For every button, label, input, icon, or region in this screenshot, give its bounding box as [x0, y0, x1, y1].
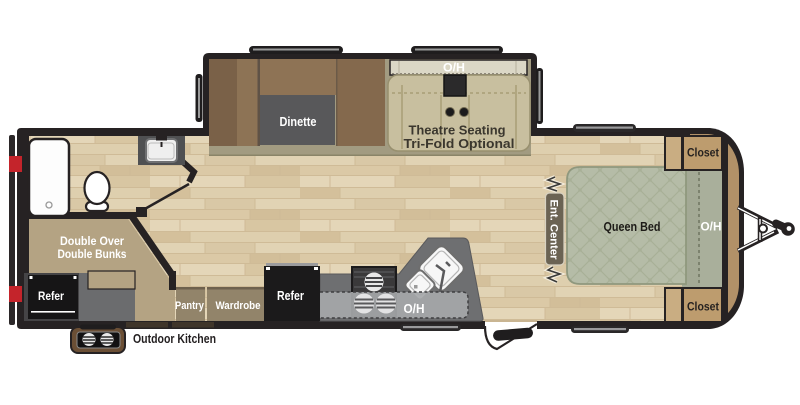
- svg-text:Pantry: Pantry: [175, 300, 205, 312]
- svg-text:Queen Bed: Queen Bed: [604, 219, 661, 234]
- svg-text:Double Bunks: Double Bunks: [58, 247, 127, 261]
- svg-text:O/H: O/H: [443, 61, 465, 75]
- svg-text:Ent. Center: Ent. Center: [548, 200, 560, 261]
- svg-text:O/H: O/H: [701, 222, 722, 234]
- svg-text:Wardrobe: Wardrobe: [216, 300, 261, 312]
- svg-text:Refer: Refer: [277, 289, 304, 303]
- svg-text:O/H: O/H: [404, 301, 425, 316]
- svg-text:Refer: Refer: [38, 291, 64, 303]
- svg-text:Outdoor Kitchen: Outdoor Kitchen: [133, 331, 216, 346]
- svg-text:Closet: Closet: [687, 302, 719, 314]
- svg-text:Double Over: Double Over: [60, 234, 124, 248]
- svg-text:Tri-Fold Optional: Tri-Fold Optional: [404, 136, 515, 151]
- svg-text:Closet: Closet: [687, 148, 719, 160]
- svg-text:Dinette: Dinette: [280, 114, 317, 129]
